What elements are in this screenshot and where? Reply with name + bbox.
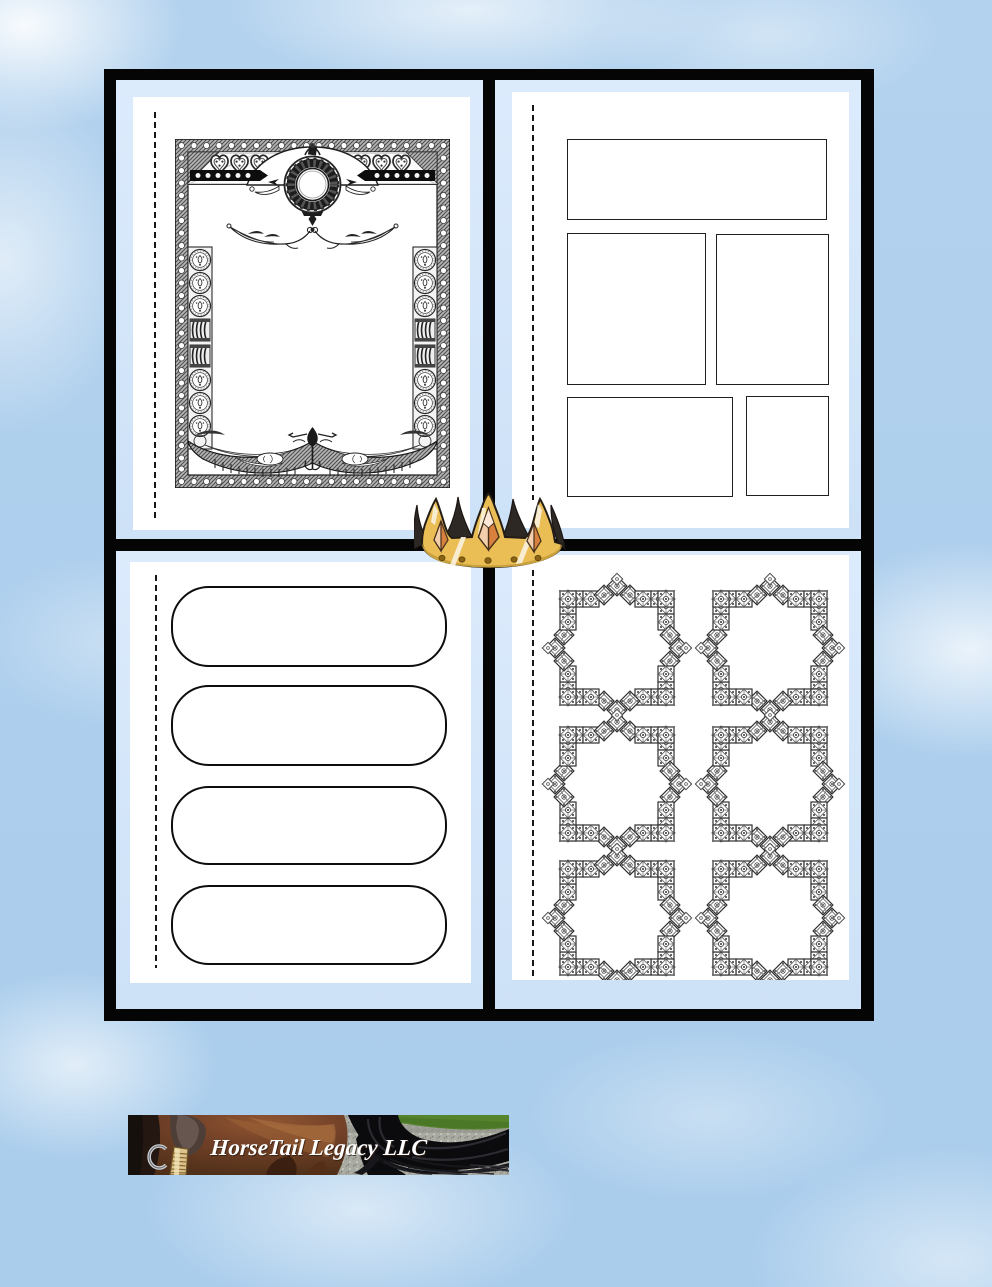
svg-text:HorseTail Legacy LLC: HorseTail Legacy LLC	[209, 1134, 429, 1160]
